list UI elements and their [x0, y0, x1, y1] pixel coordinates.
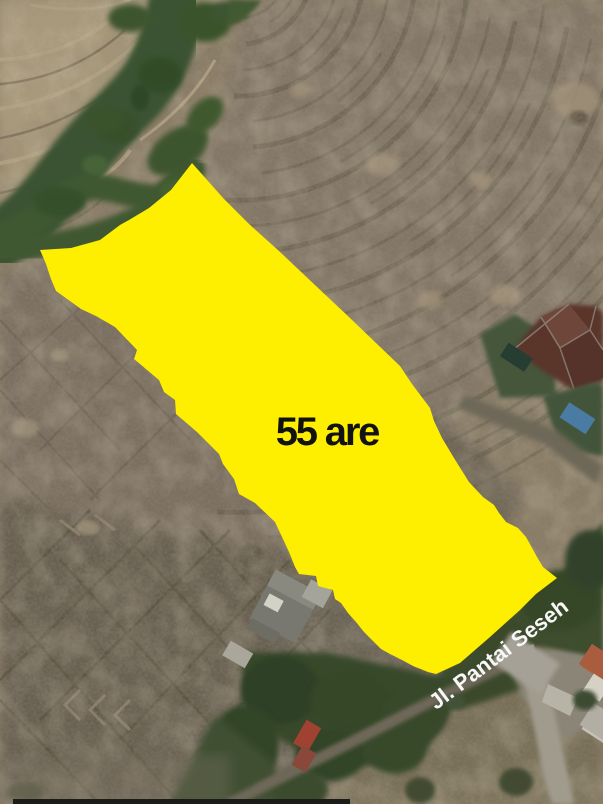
- svg-text:55 are: 55 are: [276, 410, 379, 454]
